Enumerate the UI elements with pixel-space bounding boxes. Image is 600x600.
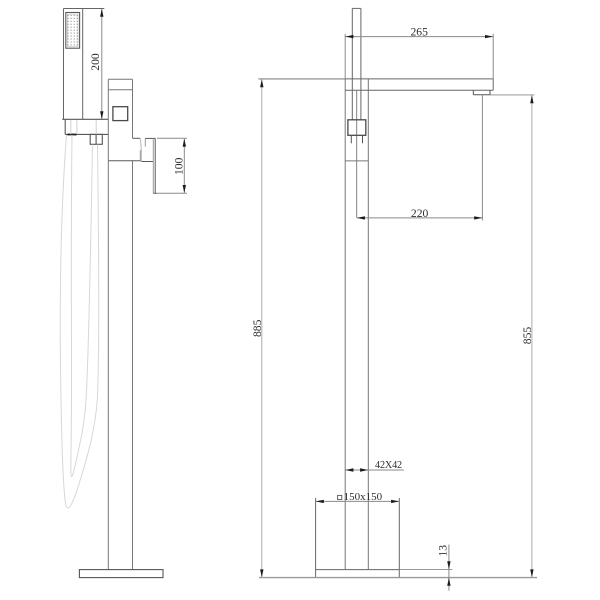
svg-text:200: 200 [89, 53, 102, 71]
svg-text:100: 100 [172, 157, 185, 175]
svg-text:42X42: 42X42 [375, 460, 402, 471]
svg-text:855: 855 [521, 327, 534, 345]
svg-text:220: 220 [411, 207, 429, 220]
svg-text:150x150: 150x150 [344, 491, 383, 503]
svg-text:265: 265 [411, 26, 429, 39]
svg-text:13: 13 [436, 545, 449, 557]
svg-text:885: 885 [251, 319, 264, 337]
